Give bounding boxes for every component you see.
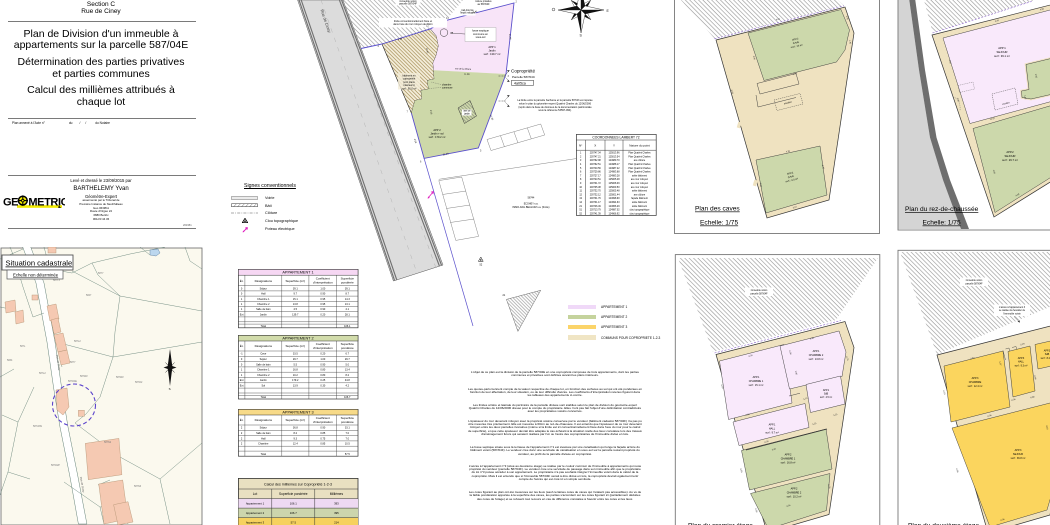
svg-text:parcelle 587/04F: parcelle 587/04F (965, 282, 983, 285)
svg-text:13.8: 13.8 (292, 303, 297, 306)
svg-text:587T3: 587T3 (53, 279, 60, 282)
svg-text:0.20: 0.20 (320, 353, 325, 356)
svg-text:0.90: 0.90 (320, 427, 325, 430)
svg-text:Cave: Cave (260, 353, 266, 356)
svg-text:203729.86: 203729.86 (590, 172, 602, 174)
svg-text:pondérée: pondérée (340, 346, 353, 350)
svg-text:203723.51: 203723.51 (590, 179, 602, 181)
svg-text:203713.79: 203713.79 (590, 210, 602, 212)
svg-text:Calcul des millièmes sur Copro: Calcul des millièmes sur Copropriété 1-2… (264, 483, 332, 487)
svg-text:0.30: 0.30 (320, 385, 325, 388)
svg-text:d'interprétation: d'interprétation (312, 280, 332, 284)
svg-text:axe clôture: axe clôture (634, 159, 646, 162)
svg-text:SEJOUR: SEJOUR (1005, 154, 1016, 158)
svg-text:jardin: jardin (463, 113, 470, 116)
svg-text:16.8: 16.8 (292, 369, 297, 372)
svg-text:Hall: Hall (261, 438, 266, 441)
svg-text:7.0: 7.0 (345, 432, 349, 435)
svg-text:203762.51: 203762.51 (590, 164, 602, 166)
svg-text:Plan Quatrini Charles: Plan Quatrini Charles (628, 152, 651, 155)
svg-text:587Y: 587Y (70, 361, 76, 364)
svg-text:33.1: 33.1 (344, 427, 349, 430)
svg-text:124956.29: 124956.29 (608, 206, 620, 208)
svg-text:Désignations: Désignations (254, 345, 272, 349)
svg-text:4.5: 4.5 (293, 308, 297, 311)
svg-text:Désignations: Désignations (254, 278, 272, 282)
svg-text:APP.1: APP.1 (813, 350, 820, 353)
svg-text:36.8: 36.8 (292, 427, 297, 430)
svg-text:se réalise via l'escalier de: se réalise via l'escalier de (999, 309, 1026, 312)
svg-text:SdB: SdB (824, 394, 829, 396)
svg-text:Chambre 2: Chambre 2 (257, 303, 270, 306)
svg-text:1.00: 1.00 (320, 287, 325, 290)
svg-text:58744: 58744 (528, 197, 535, 200)
svg-text:13.4: 13.4 (344, 369, 349, 372)
svg-text:587W2: 587W2 (116, 376, 124, 379)
svg-text:surf : 12.4 m²: surf : 12.4 m² (968, 385, 983, 388)
svg-text:203731.17: 203731.17 (590, 202, 602, 204)
svg-text:587N2: 587N2 (104, 441, 112, 444)
svg-text:124987.02: 124987.02 (608, 210, 620, 212)
svg-text:125005.48: 125005.48 (608, 191, 620, 193)
svg-text:APP.1: APP.1 (769, 424, 776, 427)
svg-text:IMMO AVAL BELGIUM s.a. (Smile): IMMO AVAL BELGIUM s.a. (Smile) (513, 206, 550, 209)
svg-text:Parcelle 587/04C: Parcelle 587/04C (512, 75, 536, 79)
svg-text:125001.44: 125001.44 (608, 194, 620, 196)
svg-text:8.2: 8.2 (293, 432, 297, 435)
svg-text:Jardin: Jardin (259, 313, 266, 316)
svg-text:4a05ca: 4a05ca (514, 81, 526, 85)
svg-text:139.7: 139.7 (292, 313, 299, 316)
svg-text:124983.28: 124983.28 (608, 175, 620, 177)
svg-text:Total: Total (260, 397, 266, 400)
svg-text:GE: GE (3, 197, 18, 209)
svg-text:4.2: 4.2 (345, 385, 349, 388)
svg-text:587W2: 587W2 (80, 375, 88, 378)
svg-text:124989.70: 124989.70 (608, 160, 620, 162)
svg-text:15.1: 15.1 (292, 297, 297, 300)
svg-text:Salle de bain: Salle de bain (256, 308, 271, 311)
svg-text:Ét.: Ét. (239, 417, 243, 422)
svg-text:axe mur mitoyen: axe mur mitoyen (631, 178, 649, 181)
svg-text:Jardin: Jardin (488, 49, 496, 53)
svg-text:X: X (594, 143, 596, 147)
svg-text:Superficie pondérée: Superficie pondérée (279, 492, 308, 496)
svg-text:203747.34: 203747.34 (590, 153, 602, 155)
svg-text:Millièmes: Millièmes (329, 492, 343, 496)
svg-text:106.7: 106.7 (289, 511, 296, 515)
svg-text:Y: Y (613, 143, 615, 147)
svg-text:immeuble voisin: immeuble voisin (966, 280, 983, 282)
svg-text:APP.2: APP.2 (785, 454, 792, 457)
svg-text:Chambre 1: Chambre 1 (257, 369, 270, 372)
svg-text:5: 5 (480, 150, 482, 153)
svg-text:9.3: 9.3 (293, 438, 297, 441)
svg-text:surf : 8.2 m²: surf : 8.2 m² (1041, 357, 1050, 360)
svg-text:6: 6 (420, 161, 422, 164)
svg-text:surf : 15.1 m²: surf : 15.1 m² (749, 384, 764, 387)
svg-text:33.5: 33.5 (292, 353, 297, 356)
svg-text:l'immeuble voisin: l'immeuble voisin (1003, 313, 1021, 315)
svg-text:APP.3: APP.3 (1018, 357, 1025, 360)
svg-text:d'interprétation: d'interprétation (312, 420, 332, 424)
svg-text:Chambre 1: Chambre 1 (257, 297, 270, 300)
svg-text:203731.72: 203731.72 (590, 183, 602, 185)
svg-text:587L2: 587L2 (74, 340, 81, 343)
svg-text:d'interprétation: d'interprétation (312, 346, 332, 350)
svg-text:Echelle non déterminée: Echelle non déterminée (13, 273, 59, 278)
svg-text:3: 3 (508, 75, 510, 78)
svg-text:125013.96: 125013.96 (608, 153, 620, 155)
svg-text:125013.54: 125013.54 (608, 156, 620, 158)
svg-text:Nature du point: Nature du point (629, 143, 650, 147)
svg-text:pondérée: pondérée (340, 280, 353, 284)
svg-text:Total: Total (260, 325, 266, 328)
svg-text:Séjour: Séjour (259, 287, 266, 290)
svg-text:8.7: 8.7 (345, 292, 349, 295)
svg-text:125009.50: 125009.50 (608, 187, 620, 189)
svg-text:0.90: 0.90 (320, 292, 325, 295)
svg-text:13.1: 13.1 (344, 303, 349, 306)
svg-text:surf : 139.7 m²: surf : 139.7 m² (484, 52, 501, 56)
svg-text:APP 2: APP 2 (433, 128, 441, 132)
svg-text:Echelle: 1/75: Echelle: 1/75 (923, 220, 961, 227)
svg-text:parcelle 587/04F: parcelle 587/04F (750, 292, 768, 295)
svg-text:Plan Quatrini Charles: Plan Quatrini Charles (628, 167, 651, 170)
svg-text:Plan Quatrini Charles: Plan Quatrini Charles (628, 155, 651, 158)
svg-text:39.1: 39.1 (344, 287, 349, 290)
svg-text:4: 4 (378, 45, 380, 48)
svg-text:Appartement 3: Appartement 3 (245, 521, 264, 525)
svg-text:surf : 9.3 m²: surf : 9.3 m² (1015, 364, 1028, 367)
svg-text:12.4: 12.4 (292, 443, 297, 446)
svg-text:203735.38: 203735.38 (590, 187, 602, 189)
svg-text:Chambre: Chambre (258, 443, 269, 446)
svg-text:Ét.: Ét. (239, 277, 243, 282)
svg-text:SEJOUR: SEJOUR (997, 50, 1008, 54)
svg-text:façade bâtiment: façade bâtiment (631, 197, 648, 200)
svg-text:SEJOUR: SEJOUR (1013, 453, 1023, 456)
svg-text:Jardin: Jardin (259, 380, 266, 383)
svg-text:Plan Quatrini Charles: Plan Quatrini Charles (628, 171, 651, 174)
svg-text:surf : 16.8 m²: surf : 16.8 m² (781, 462, 796, 465)
svg-text:4.50: 4.50 (413, 139, 416, 145)
svg-text:Plan du rez-de-chaussée: Plan du rez-de-chaussée (905, 206, 979, 213)
svg-text:57.5: 57.5 (290, 521, 296, 525)
svg-text:Lot: Lot (252, 492, 257, 496)
svg-text:587/02P: 587/02P (51, 464, 60, 467)
svg-text:surf : 9.7 m²: surf : 9.7 m² (765, 432, 779, 435)
svg-text:106.1: 106.1 (289, 502, 296, 506)
svg-text:Salle de bain: Salle de bain (256, 432, 271, 435)
svg-text:HALL: HALL (1018, 361, 1025, 364)
svg-text:Séjour: Séjour (259, 427, 266, 430)
svg-text:0.25: 0.25 (320, 380, 325, 383)
svg-text:395: 395 (334, 511, 339, 515)
svg-text:587/43N: 587/43N (33, 425, 42, 428)
svg-text:14.3: 14.3 (344, 297, 349, 300)
svg-text:0.80: 0.80 (320, 374, 325, 377)
svg-text:214: 214 (334, 521, 339, 525)
svg-text:immeuble voisin: immeuble voisin (751, 290, 768, 292)
svg-text:Plan des caves: Plan des caves (695, 206, 740, 213)
svg-text:CHAMBRE 2: CHAMBRE 2 (787, 492, 802, 495)
svg-text:surf : 13.8 m²: surf : 13.8 m² (809, 358, 824, 361)
svg-text:surf : 4.5 m²: surf : 4.5 m² (820, 396, 832, 399)
svg-text:SdB: SdB (1045, 353, 1050, 356)
svg-text:Ext: Ext (239, 385, 243, 388)
svg-text:0.90: 0.90 (320, 308, 325, 311)
svg-text:0.20: 0.20 (320, 313, 325, 316)
svg-text:Séjour: Séjour (259, 358, 266, 361)
svg-text:Superficie (m²): Superficie (m²) (285, 418, 305, 422)
svg-text:S: S (169, 387, 171, 391)
svg-text:29.7: 29.7 (344, 358, 349, 361)
svg-text:CHAMBRE 1: CHAMBRE 1 (749, 380, 764, 383)
svg-text:Hall: Hall (261, 292, 266, 295)
svg-text:Superficie (m²): Superficie (m²) (285, 278, 305, 282)
svg-text:10.5: 10.5 (344, 443, 349, 446)
svg-text:clou topographique: clou topographique (630, 209, 651, 212)
svg-text:CHAMBRE: CHAMBRE (969, 381, 982, 384)
svg-text:5.5: 5.5 (293, 364, 297, 367)
svg-text:7.0: 7.0 (345, 438, 349, 441)
svg-text:surf : 179.2 m²: surf : 179.2 m² (429, 135, 446, 139)
svg-text:axe mur mitoyen: axe mur mitoyen (631, 182, 649, 185)
svg-text:39.1: 39.1 (292, 287, 297, 290)
svg-text:APPARTEMENT 3: APPARTEMENT 3 (282, 411, 313, 415)
svg-text:0.95: 0.95 (320, 297, 325, 300)
svg-text:arête bâtiment: arête bâtiment (632, 201, 647, 204)
svg-text:9.7: 9.7 (293, 292, 297, 295)
svg-text:8.2: 8.2 (345, 374, 349, 377)
svg-text:axe mur mitoyen: axe mur mitoyen (631, 186, 649, 189)
svg-text:APP.2: APP.2 (791, 488, 798, 491)
svg-text:124987.22: 124987.22 (608, 168, 620, 170)
svg-text:29.7: 29.7 (292, 358, 297, 361)
svg-text:44.8: 44.8 (344, 380, 349, 383)
svg-text:5834: 5834 (7, 359, 13, 362)
svg-text:pondérée: pondérée (340, 420, 353, 424)
svg-text:0.85: 0.85 (320, 432, 325, 435)
svg-text:Plan Quatrini Charles: Plan Quatrini Charles (628, 163, 651, 166)
svg-text:124966.92: 124966.92 (608, 213, 620, 215)
svg-text:APP.3: APP.3 (972, 377, 979, 380)
svg-text:clou topographique: clou topographique (630, 212, 651, 215)
svg-text:203732.70: 203732.70 (590, 191, 602, 193)
svg-text:124998.90: 124998.90 (608, 198, 620, 200)
svg-text:parcelle 587/04F: parcelle 587/04F (399, 3, 417, 6)
svg-text:APP.3: APP.3 (1044, 350, 1050, 353)
svg-text:APPARTEMENT 2: APPARTEMENT 2 (282, 337, 313, 341)
svg-text:203762.98: 203762.98 (590, 160, 602, 162)
svg-text:587Y: 587Y (98, 272, 104, 275)
svg-text:Superficie (m²): Superficie (m²) (285, 345, 305, 349)
svg-text:587L: 587L (20, 345, 26, 348)
svg-text:Total: Total (260, 453, 266, 456)
svg-text:arête bâtiment: arête bâtiment (632, 205, 647, 208)
svg-text:surf : 36.8 m²: surf : 36.8 m² (1011, 457, 1026, 460)
svg-text:203741.39: 203741.39 (590, 213, 602, 215)
svg-text:179.2: 179.2 (292, 380, 299, 383)
svg-text:5847: 5847 (86, 294, 92, 297)
svg-text:21: 21 (503, 294, 506, 297)
svg-text:axe de la clôture: axe de la clôture (455, 67, 472, 71)
svg-text:0.80: 0.80 (320, 369, 325, 372)
svg-text:203731.76: 203731.76 (590, 198, 602, 200)
svg-text:587/02: 587/02 (135, 381, 143, 384)
svg-text:Ét.: Ét. (239, 344, 243, 349)
svg-text:Ext: Ext (239, 380, 243, 383)
svg-text:7: 7 (407, 111, 409, 114)
svg-text:11.90: 11.90 (464, 74, 470, 76)
svg-text:abri de: abri de (463, 110, 471, 113)
svg-text:arête bâtiment: arête bâtiment (632, 174, 647, 177)
svg-text:0.95: 0.95 (320, 303, 325, 306)
svg-text:Copropriété: Copropriété (511, 69, 535, 74)
svg-text:203746.49: 203746.49 (590, 206, 602, 208)
svg-text:Ext: Ext (239, 313, 243, 316)
svg-text:106.7: 106.7 (344, 397, 351, 400)
svg-text:125005.48: 125005.48 (608, 179, 620, 181)
svg-text:10.2: 10.2 (292, 374, 297, 377)
svg-text:124983.68: 124983.68 (608, 172, 620, 174)
svg-text:124994.63: 124994.63 (608, 202, 620, 204)
svg-text:E: E (607, 9, 610, 13)
svg-text:0.75: 0.75 (320, 438, 325, 441)
svg-text:Appartement 1: Appartement 1 (245, 502, 264, 506)
svg-text:203732.12: 203732.12 (590, 194, 602, 196)
svg-text:APP.2: APP.2 (1006, 150, 1014, 154)
svg-text:5.0: 5.0 (345, 364, 349, 367)
svg-text:Appartement 2: Appartement 2 (245, 511, 264, 515)
svg-text:587/04E: 587/04E (68, 380, 77, 383)
svg-text:APP 1: APP 1 (488, 45, 496, 49)
svg-text:Jardin + sol: Jardin + sol (430, 132, 444, 136)
svg-text:6.7: 6.7 (345, 353, 349, 356)
svg-text:Sol: Sol (261, 385, 265, 388)
svg-text:L'accès à l'appartement 3: L'accès à l'appartement 3 (999, 306, 1026, 309)
svg-text:0.85: 0.85 (320, 443, 325, 446)
svg-text:arête bâtiment: arête bâtiment (632, 190, 647, 193)
svg-text:203740.56: 203740.56 (590, 168, 602, 170)
svg-text:APP.3: APP.3 (1015, 449, 1022, 452)
svg-text:Situation cadastrale: Situation cadastrale (6, 259, 73, 268)
svg-text:57.5: 57.5 (344, 453, 349, 456)
svg-text:124988.17: 124988.17 (608, 164, 620, 166)
svg-text:APPARTEMENT 1: APPARTEMENT 1 (282, 270, 313, 274)
svg-text:Salle de bain: Salle de bain (256, 364, 271, 367)
svg-text:Désignations: Désignations (254, 418, 272, 422)
svg-text:1.00: 1.00 (320, 358, 325, 361)
svg-text:4.1: 4.1 (345, 308, 349, 311)
svg-text:13.9: 13.9 (292, 385, 297, 388)
svg-text:52: 52 (480, 264, 483, 267)
svg-text:surf : 29.7 m²: surf : 29.7 m² (1002, 158, 1018, 162)
svg-text:commune: commune (442, 87, 453, 90)
svg-text:203727.17: 203727.17 (590, 175, 602, 177)
svg-text:Echelle: 1/75: Echelle: 1/75 (700, 220, 738, 227)
svg-text:0.90: 0.90 (320, 364, 325, 367)
svg-text:APP:1: APP:1 (998, 46, 1006, 50)
svg-text:COORDONNEES LAMBERT 72: COORDONNEES LAMBERT 72 (592, 135, 639, 139)
svg-text:sous la référence 53597-090).: sous la référence 53597-090). (538, 109, 572, 112)
svg-text:APP.1: APP.1 (753, 376, 760, 379)
svg-text:surf : 90.0 m²: surf : 90.0 m² (402, 88, 417, 91)
svg-text:CHAMBRE 1: CHAMBRE 1 (781, 458, 796, 461)
svg-text:Chambre 2: Chambre 2 (257, 374, 270, 377)
svg-text:CHAMBRE 2: CHAMBRE 2 (809, 354, 824, 357)
svg-text:106.1: 106.1 (344, 325, 351, 328)
svg-text:587L2: 587L2 (39, 372, 46, 375)
svg-text:S: S (580, 34, 583, 38)
svg-text:125008.39: 125008.39 (608, 183, 620, 185)
svg-text:28.1: 28.1 (344, 313, 349, 316)
svg-text:au 587/04F: au 587/04F (477, 3, 490, 6)
svg-text:APP.1: APP.1 (823, 389, 830, 392)
svg-text:2: 2 (516, 1, 518, 4)
svg-text:surf : 39.1 m²: surf : 39.1 m² (994, 54, 1010, 58)
svg-text:203747.21: 203747.21 (590, 156, 602, 158)
svg-text:587N3: 587N3 (134, 485, 142, 488)
svg-text:axe clôture: axe clôture (634, 193, 646, 196)
svg-text:393: 393 (334, 502, 339, 506)
svg-text:sous-sol: sous-sol (476, 35, 486, 39)
svg-text:HALL: HALL (769, 428, 776, 431)
svg-text:surf : 10.2 m²: surf : 10.2 m² (787, 496, 802, 499)
